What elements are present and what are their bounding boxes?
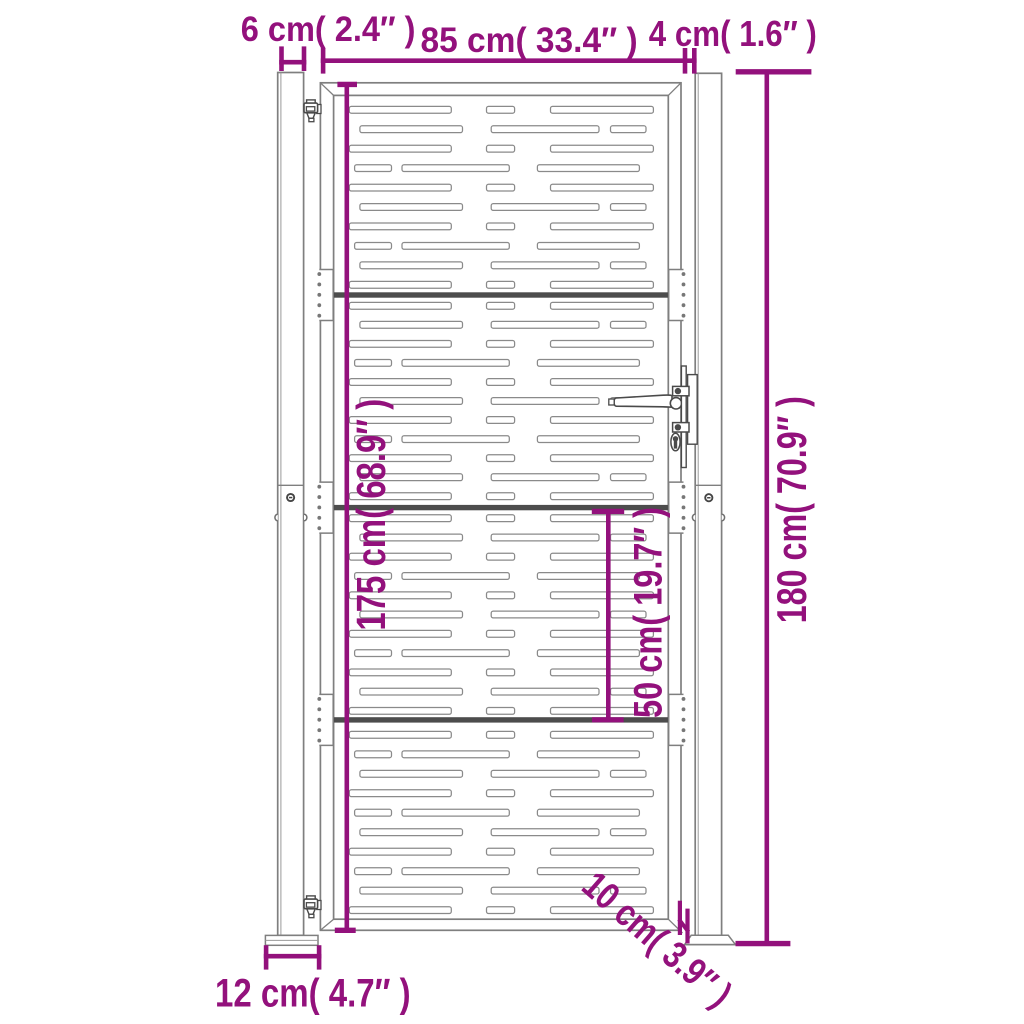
svg-text:50 cm( 19.7″ ): 50 cm( 19.7″ ) — [627, 507, 671, 718]
svg-text:180 cm( 70.9″ ): 180 cm( 70.9″ ) — [768, 396, 815, 623]
svg-text:85 cm( 33.4″ ): 85 cm( 33.4″ ) — [421, 21, 638, 60]
svg-text:175 cm( 68.9″ ): 175 cm( 68.9″ ) — [348, 399, 394, 631]
svg-text:12 cm( 4.7″ ): 12 cm( 4.7″ ) — [215, 971, 411, 1015]
svg-text:4 cm( 1.6″ ): 4 cm( 1.6″ ) — [649, 13, 817, 54]
svg-text:6 cm( 2.4″ ): 6 cm( 2.4″ ) — [241, 9, 416, 49]
